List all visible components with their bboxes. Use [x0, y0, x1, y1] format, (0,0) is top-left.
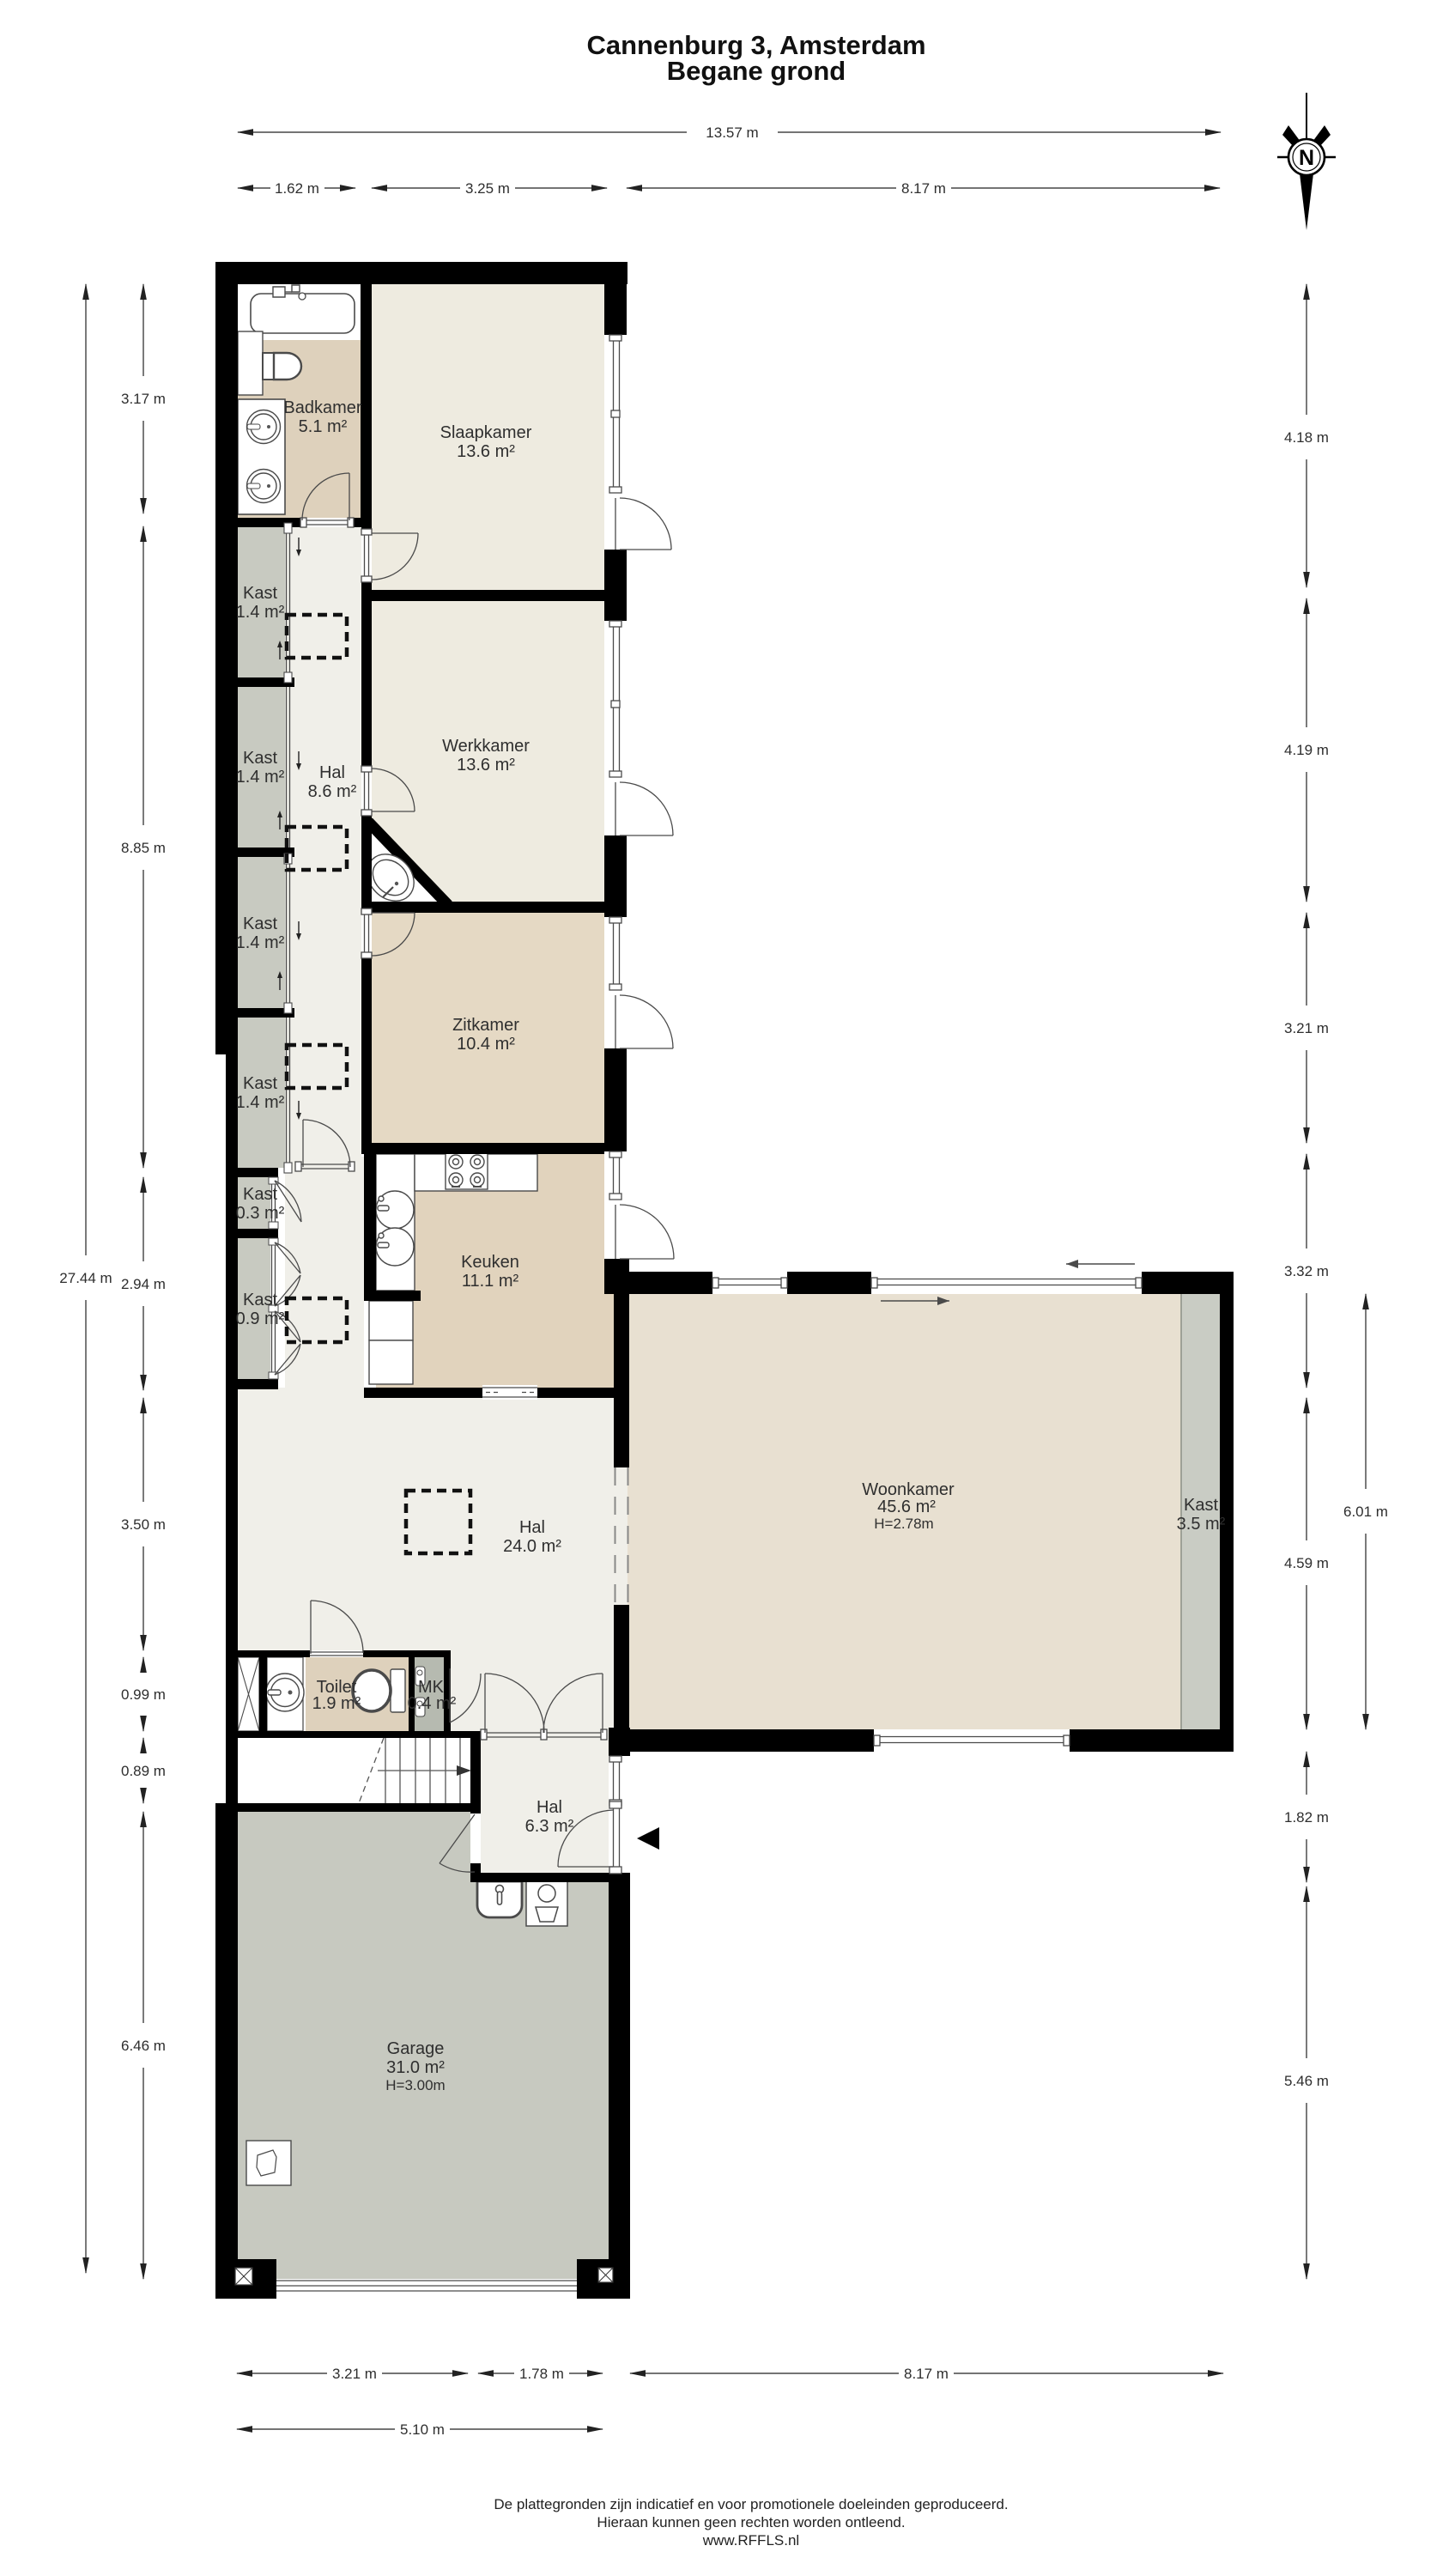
svg-text:4.18 m: 4.18 m — [1284, 429, 1329, 446]
svg-text:N: N — [1299, 146, 1314, 170]
svg-text:1.82 m: 1.82 m — [1284, 1809, 1329, 1826]
svg-text:11.1 m²: 11.1 m² — [462, 1272, 519, 1291]
svg-text:3.5 m²: 3.5 m² — [1177, 1515, 1226, 1534]
svg-text:Hal: Hal — [537, 1798, 562, 1817]
svg-text:3.25 m: 3.25 m — [465, 180, 510, 197]
svg-text:0.99 m: 0.99 m — [121, 1686, 166, 1703]
svg-text:Hal: Hal — [319, 763, 345, 782]
svg-text:1.4 m²: 1.4 m² — [236, 768, 285, 787]
svg-text:0.89 m: 0.89 m — [121, 1763, 166, 1779]
svg-text:1.4 m²: 1.4 m² — [236, 603, 285, 622]
svg-text:1.4 m²: 1.4 m² — [236, 933, 285, 952]
svg-text:8.85 m: 8.85 m — [121, 840, 166, 856]
svg-text:Woonkamer: Woonkamer — [862, 1480, 955, 1499]
svg-text:3.21 m: 3.21 m — [332, 2366, 377, 2382]
svg-text:8.17 m: 8.17 m — [901, 180, 946, 197]
svg-text:3.50 m: 3.50 m — [121, 1516, 166, 1533]
svg-text:0.3 m²: 0.3 m² — [236, 1204, 285, 1223]
svg-text:Kast: Kast — [243, 584, 277, 603]
svg-text:Slaapkamer: Slaapkamer — [440, 423, 532, 442]
svg-text:H=2.78m: H=2.78m — [874, 1516, 933, 1532]
svg-text:6.46 m: 6.46 m — [121, 2038, 166, 2054]
svg-text:13.6 m²: 13.6 m² — [457, 756, 515, 775]
svg-text:4.59 m: 4.59 m — [1284, 1555, 1329, 1571]
svg-text:De plattegronden zijn indicati: De plattegronden zijn indicatief en voor… — [494, 2496, 1008, 2512]
svg-text:8.6 m²: 8.6 m² — [308, 782, 357, 801]
svg-text:27.44 m: 27.44 m — [59, 1270, 112, 1286]
svg-text:1.78 m: 1.78 m — [519, 2366, 564, 2382]
svg-text:1.62 m: 1.62 m — [275, 180, 319, 197]
svg-text:3.17 m: 3.17 m — [121, 391, 166, 407]
svg-text:Hieraan kunnen geen rechten wo: Hieraan kunnen geen rechten worden ontle… — [597, 2514, 905, 2530]
svg-text:6.01 m: 6.01 m — [1343, 1504, 1388, 1520]
svg-text:24.0 m²: 24.0 m² — [503, 1537, 561, 1556]
svg-text:2.94 m: 2.94 m — [121, 1276, 166, 1292]
svg-text:0.9 m²: 0.9 m² — [236, 1309, 285, 1328]
svg-text:45.6 m²: 45.6 m² — [877, 1498, 936, 1516]
svg-text:Begane grond: Begane grond — [667, 56, 846, 86]
svg-text:Kast: Kast — [243, 1185, 277, 1204]
svg-text:3.21 m: 3.21 m — [1284, 1020, 1329, 1036]
svg-text:Kast: Kast — [243, 749, 277, 768]
svg-text:31.0 m²: 31.0 m² — [386, 2058, 445, 2077]
svg-text:13.6 m²: 13.6 m² — [457, 442, 515, 461]
svg-text:Kast: Kast — [243, 1291, 277, 1309]
svg-text:5.46 m: 5.46 m — [1284, 2073, 1329, 2089]
svg-text:Keuken: Keuken — [461, 1253, 519, 1272]
svg-text:Zitkamer: Zitkamer — [452, 1016, 519, 1035]
svg-text:Badkamer: Badkamer — [283, 398, 361, 417]
svg-text:6.3 m²: 6.3 m² — [525, 1817, 574, 1836]
svg-text:5.10 m: 5.10 m — [400, 2421, 445, 2438]
svg-text:Kast: Kast — [243, 914, 277, 933]
svg-text:1.9 m²: 1.9 m² — [312, 1694, 361, 1713]
svg-text:13.57 m: 13.57 m — [706, 125, 758, 141]
svg-text:Kast: Kast — [243, 1074, 277, 1093]
svg-text:4.19 m: 4.19 m — [1284, 742, 1329, 758]
svg-text:www.RFFLS.nl: www.RFFLS.nl — [702, 2532, 799, 2549]
svg-text:5.1 m²: 5.1 m² — [299, 417, 348, 436]
svg-text:H=3.00m: H=3.00m — [385, 2077, 445, 2093]
svg-text:Kast: Kast — [1184, 1496, 1218, 1515]
svg-text:10.4 m²: 10.4 m² — [457, 1035, 515, 1054]
svg-text:Werkkamer: Werkkamer — [442, 737, 530, 756]
svg-text:8.17 m: 8.17 m — [904, 2366, 949, 2382]
svg-text:Garage: Garage — [387, 2039, 445, 2058]
svg-text:3.32 m: 3.32 m — [1284, 1263, 1329, 1279]
svg-text:0.4 m²: 0.4 m² — [408, 1694, 457, 1713]
svg-text:Hal: Hal — [519, 1518, 545, 1537]
svg-text:1.4 m²: 1.4 m² — [236, 1093, 285, 1112]
